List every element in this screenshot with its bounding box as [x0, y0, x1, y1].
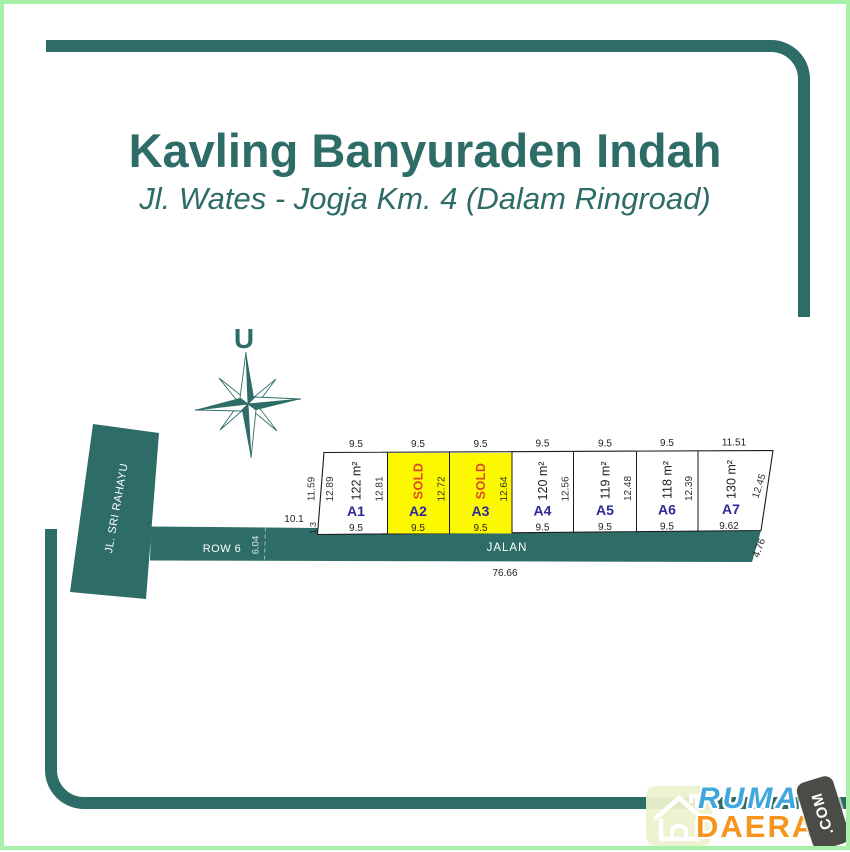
row-label: ROW 6: [203, 543, 242, 555]
plot-a2-id: A2: [409, 503, 427, 519]
block-left-outer-dim: 11.59: [307, 476, 318, 501]
plot-a6-id: A6: [658, 502, 676, 518]
compass-s-light: [248, 404, 256, 458]
page-subtitle: Jl. Wates - Jogja Km. 4 (Dalam Ringroad): [0, 181, 850, 217]
plot-a1-bottom-dim: 9.5: [349, 523, 363, 534]
plot-block: 11.59 12.89 9.5 122 m² A1 9.5 12.81 9.5 …: [307, 438, 774, 535]
plot-a5-bottom-dim: 9.5: [598, 522, 612, 533]
plot-a5-top-dim: 9.5: [598, 439, 612, 450]
plot-a5-side-dim: 12.48: [623, 476, 634, 501]
watermark-com-text: .COM: [809, 790, 838, 836]
plot-a6-area: 118 m²: [660, 461, 674, 499]
plot-a7-id: A7: [722, 501, 740, 517]
compass-icon: U: [195, 323, 301, 458]
plot-a4-bottom-dim: 9.5: [536, 523, 550, 534]
compass-north-label: U: [234, 323, 254, 354]
plot-a6-side-dim: 12.39: [684, 476, 695, 501]
watermark-logo: RUMAH DAERAH .COM: [638, 775, 850, 850]
plot-a1-id: A1: [347, 503, 365, 519]
plot-a5-area: 119 m²: [598, 462, 612, 500]
plot-a7-area: 130 m²: [724, 460, 738, 499]
frontage-left-dim: 10.1: [284, 514, 304, 525]
corner-offset-dim: 1.3: [308, 522, 318, 534]
main-road-length-dim: 76.66: [492, 568, 517, 579]
side-road: JL. SRI RAHAYU: [70, 424, 159, 599]
plot-a3-top-dim: 9.5: [474, 439, 488, 450]
plot-a2-sold-text: SOLD: [411, 463, 425, 500]
plot-a4-id: A4: [534, 503, 552, 519]
site-plan-poster: { "title": "Kavling Banyuraden Indah", "…: [0, 0, 850, 850]
plot-a4-area: 120 m²: [536, 462, 550, 501]
road-width-dim: 6.04: [251, 536, 262, 555]
plot-a3-id: A3: [472, 503, 490, 519]
plot-a1-side-dim: 12.81: [375, 476, 386, 501]
plot-a2-top-dim: 9.5: [411, 439, 425, 450]
plot-a2-side-dim: 12.72: [437, 476, 448, 501]
plot-a1-top-dim: 9.5: [349, 439, 363, 450]
plot-a6-top-dim: 9.5: [660, 438, 674, 449]
plot-a3-bottom-dim: 9.5: [474, 523, 488, 534]
plot-a3-side-dim: 12.64: [499, 476, 510, 501]
plot-a5-id: A5: [596, 502, 614, 518]
plot-a4-top-dim: 9.5: [536, 439, 550, 450]
page-title: Kavling Banyuraden Indah: [0, 123, 850, 178]
main-road-name: JALAN: [487, 542, 528, 554]
plot-a2-bottom-dim: 9.5: [411, 523, 425, 534]
plot-a1-area: 122 m²: [349, 462, 363, 501]
frame-bottom-left: [51, 529, 850, 803]
plot-a7-top-dim: 11.51: [722, 438, 747, 449]
plot-a6-bottom-dim: 9.5: [660, 522, 674, 533]
plot-a4-side-dim: 12.56: [561, 476, 572, 501]
block-left-inner-dim: 12.89: [325, 476, 336, 501]
plot-a3-sold-text: SOLD: [474, 463, 488, 500]
plot-a7-bottom-dim: 9.62: [719, 521, 739, 532]
